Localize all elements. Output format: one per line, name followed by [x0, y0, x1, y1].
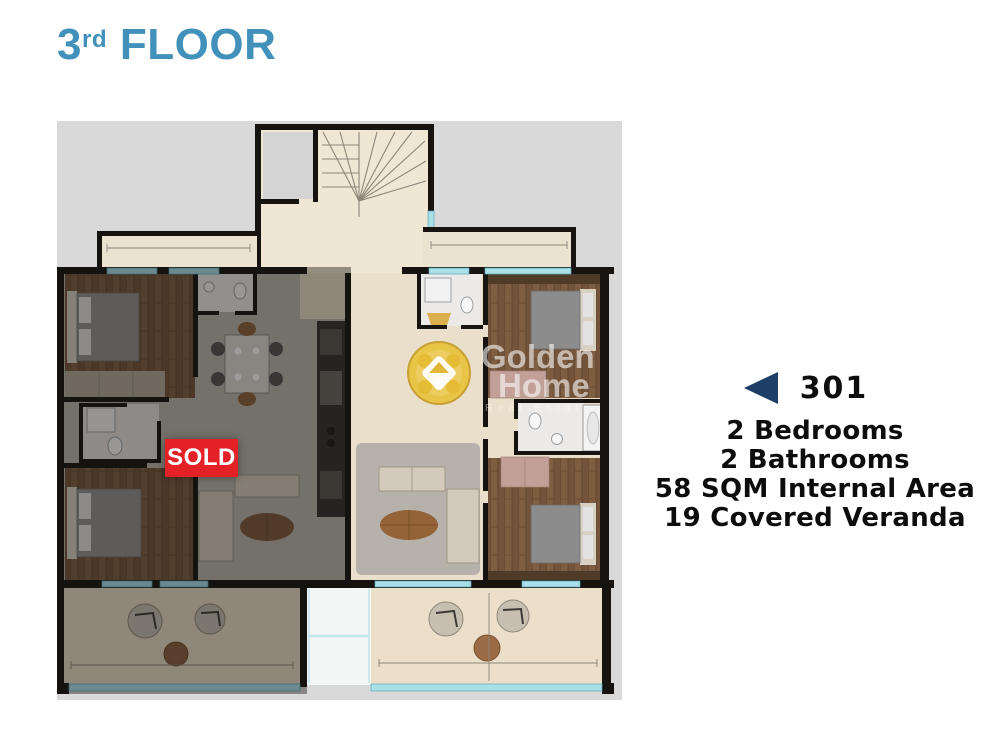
floor-plan-drawing: Golden Home Real Estate [57, 121, 622, 700]
sold-overlay [57, 267, 351, 694]
floor-plan: Golden Home Real Estate SOLD [57, 121, 622, 700]
watermark-text: Golden Home Real Estate [481, 338, 595, 414]
unit-detail-bedrooms: 2 Bedrooms [635, 417, 995, 446]
watermark-line2: Home [498, 367, 590, 404]
balcony-top-right [423, 227, 576, 269]
slide: 3rd FLOOR [0, 0, 1000, 749]
unit-detail-veranda: 19 Covered Veranda [635, 504, 995, 533]
balcony-top-left [97, 231, 257, 269]
watermark-tagline: Real Estate [485, 402, 594, 414]
unit-301-rooms [350, 273, 604, 581]
floor-ordinal: rd [82, 26, 107, 53]
page-title: 3rd FLOOR [57, 20, 276, 70]
left-arrow-icon [744, 372, 778, 404]
lightwell [307, 587, 371, 685]
floor-word: FLOOR [120, 20, 276, 69]
unit-number: 301 [800, 371, 869, 406]
stairwell [255, 124, 434, 273]
floor-number: 3 [57, 20, 82, 69]
veranda-301 [371, 587, 603, 687]
unit-detail-bathrooms: 2 Bathrooms [635, 446, 995, 475]
unit-header: 301 [641, 370, 971, 406]
unit-details: 2 Bedrooms 2 Bathrooms 58 SQM Internal A… [635, 417, 995, 533]
sold-badge: SOLD [165, 439, 238, 477]
unit-detail-internal-area: 58 SQM Internal Area [635, 475, 995, 504]
